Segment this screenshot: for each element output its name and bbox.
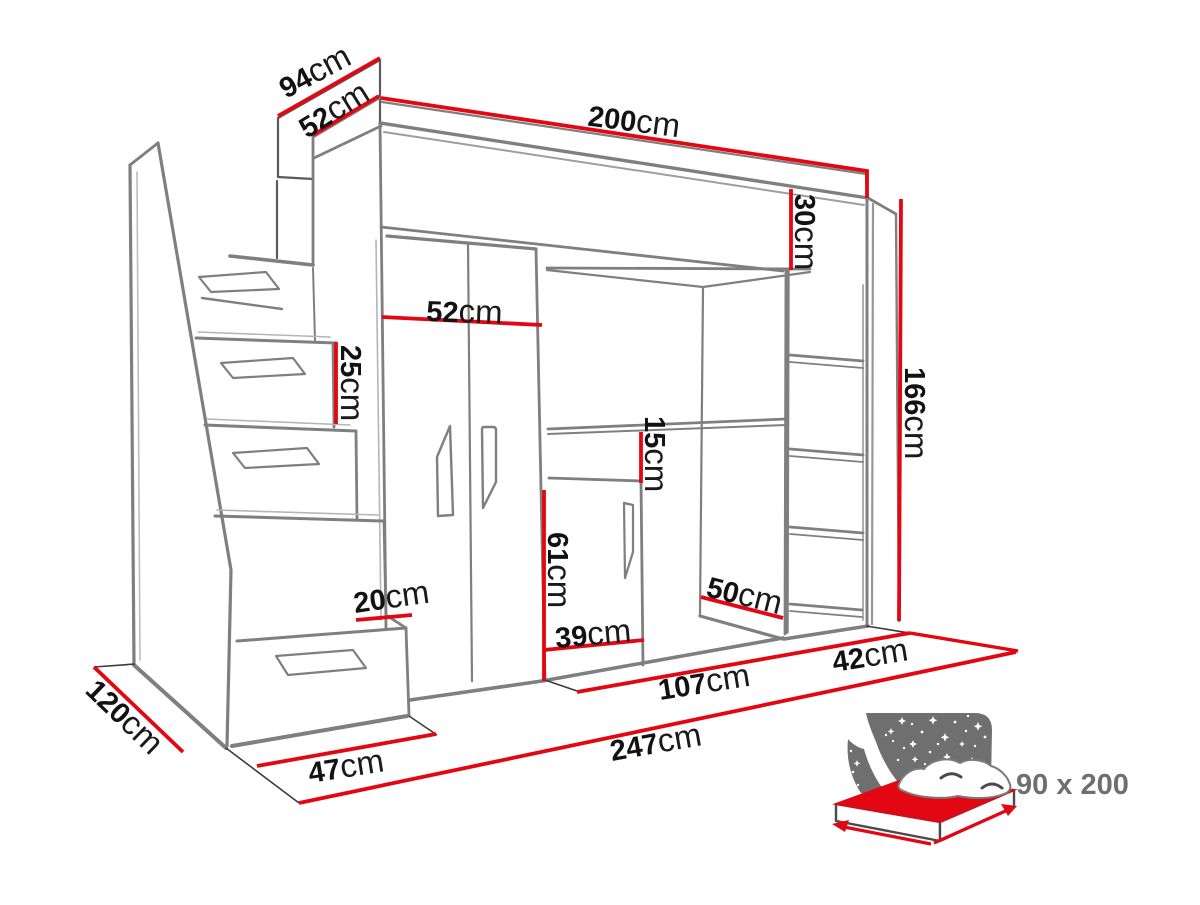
svg-text:90 x 200: 90 x 200 <box>1016 769 1129 801</box>
svg-text:52cm: 52cm <box>426 291 504 331</box>
svg-text:25cm: 25cm <box>334 345 371 421</box>
svg-text:61cm: 61cm <box>541 532 578 608</box>
svg-text:30cm: 30cm <box>788 194 825 270</box>
svg-text:15cm: 15cm <box>638 416 675 492</box>
svg-text:166cm: 166cm <box>898 367 935 459</box>
